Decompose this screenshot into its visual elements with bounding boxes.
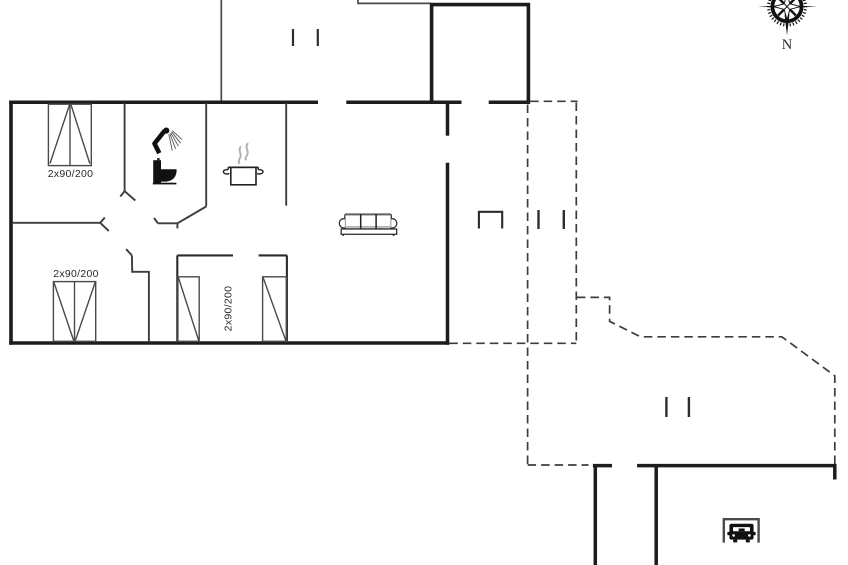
svg-text:N: N <box>782 37 793 53</box>
svg-text:2x90/200: 2x90/200 <box>53 268 99 280</box>
svg-text:2x90/200: 2x90/200 <box>48 168 94 180</box>
svg-text:2x90/200: 2x90/200 <box>223 286 235 332</box>
